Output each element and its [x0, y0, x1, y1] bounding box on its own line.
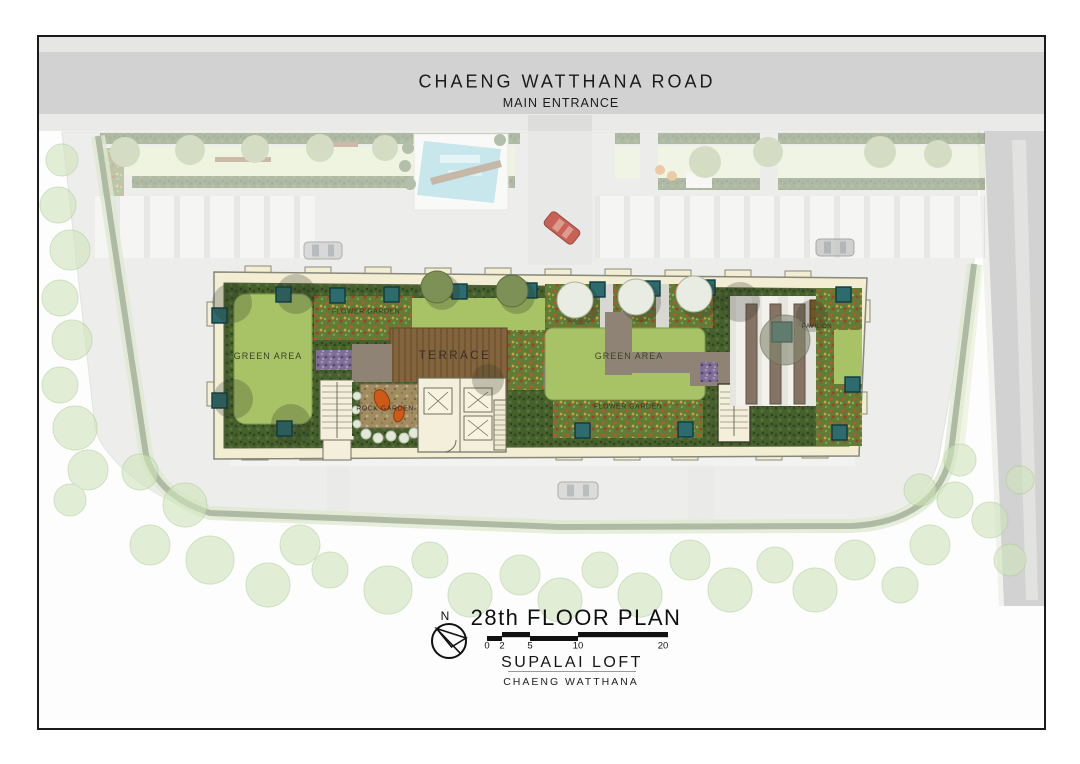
- project-name-underline: [508, 671, 636, 672]
- flower-garden-lower-label: FLOWER GARDEN: [594, 404, 662, 411]
- terrace-label: TERRACE: [419, 350, 491, 362]
- parking-stalls-right: [595, 196, 985, 258]
- pavilion-label: PAVILION: [802, 324, 832, 330]
- scale-tick-5: 5: [527, 641, 532, 652]
- green-area-left-label: GREEN AREA: [234, 351, 303, 361]
- scale-tick-2: 2: [499, 641, 504, 652]
- plan-sheet: CHAENG WATTHANA ROAD MAIN ENTRANCE GREEN…: [0, 0, 1080, 764]
- plan-title: 28th FLOOR PLAN: [471, 605, 682, 631]
- rock-garden-label: ROCK GARDEN: [356, 406, 414, 413]
- parking-stalls-left: [95, 196, 315, 258]
- car-gray-2: [816, 239, 854, 256]
- project-name: SUPALAI LOFT: [501, 654, 643, 672]
- flower-garden-upper-label: FLOWER GARDEN: [332, 309, 400, 316]
- car-gray-3: [558, 482, 598, 499]
- scale-tick-10: 10: [573, 641, 584, 652]
- north-label: N: [441, 609, 450, 623]
- green-area-right-label: GREEN AREA: [595, 351, 664, 361]
- scale-tick-0: 0: [484, 641, 489, 652]
- stair-left: [320, 380, 354, 460]
- building-roof-plan: [207, 266, 870, 460]
- scale-tick-20: 20: [658, 641, 669, 652]
- main-entrance-label: MAIN ENTRANCE: [503, 96, 619, 110]
- swimming-pool: [399, 134, 508, 210]
- project-subtitle: CHAENG WATTHANA: [503, 676, 639, 688]
- entrance-driveway: [528, 115, 592, 265]
- road-name-label: CHAENG WATTHANA ROAD: [418, 72, 715, 93]
- car-gray-1: [304, 242, 342, 259]
- site-plan-canvas: [0, 0, 1080, 764]
- rock-garden-area: [352, 382, 426, 443]
